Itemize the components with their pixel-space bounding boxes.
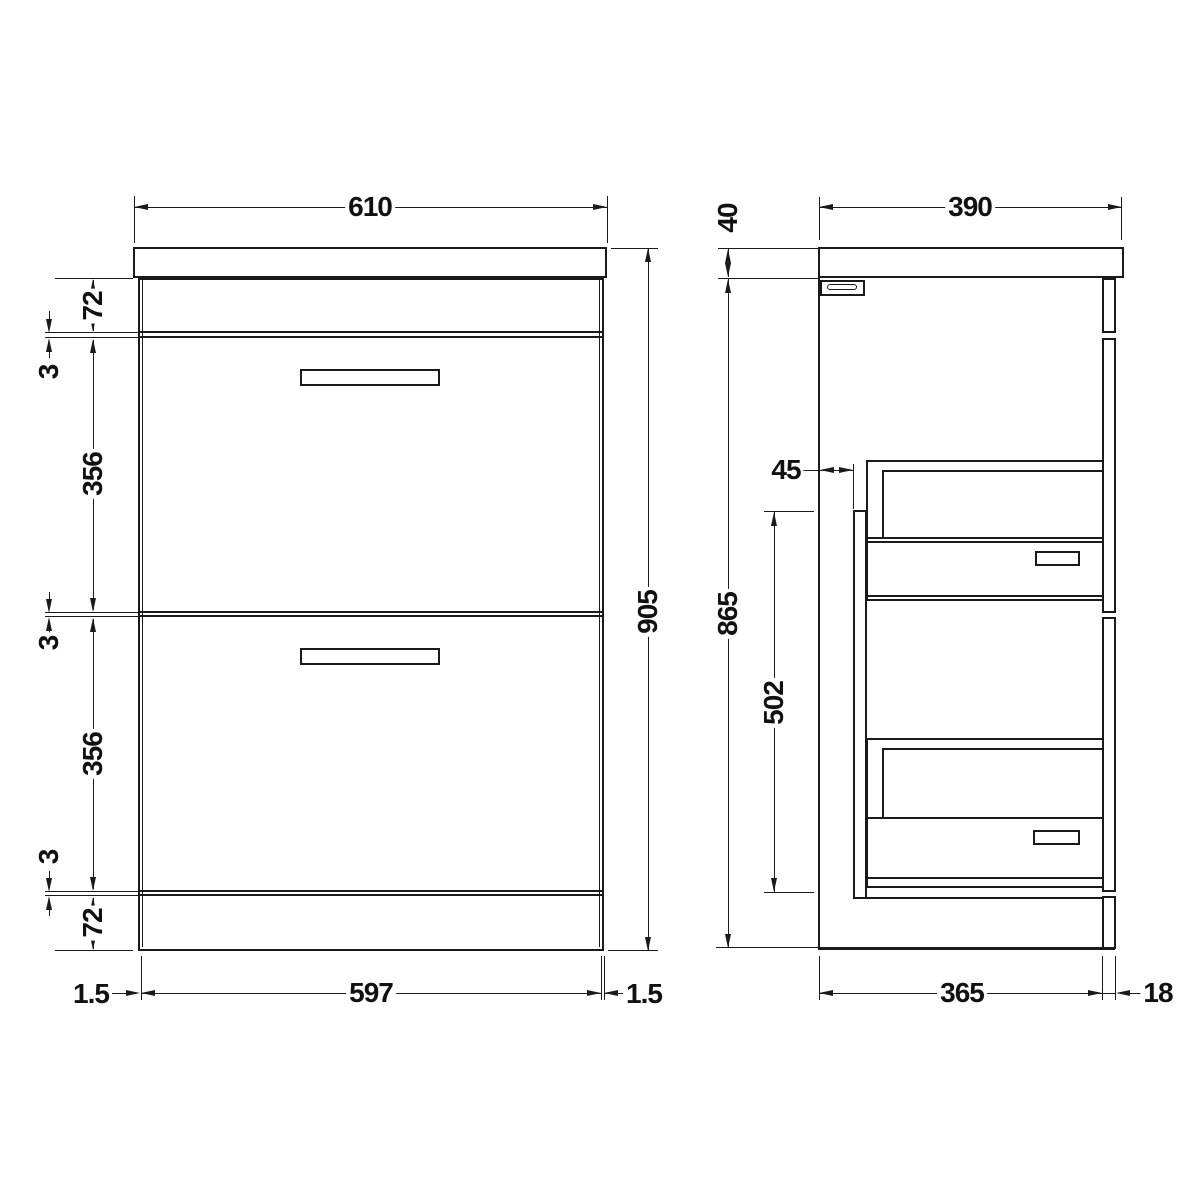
dim-arrow — [820, 467, 834, 473]
drawer2-box-inner-back — [882, 748, 884, 817]
drawer1-handle — [300, 369, 440, 386]
ext-line — [764, 892, 814, 893]
dim-front-width: 610 — [345, 193, 395, 221]
dim-side-gap-left: 1.5 — [70, 980, 112, 1008]
dim-arrow — [1088, 990, 1102, 996]
ext-line — [45, 612, 138, 613]
ext-line — [45, 337, 138, 338]
top-rail-front-side — [1102, 278, 1116, 333]
gap-line — [140, 336, 602, 338]
dim-arrow — [46, 338, 52, 352]
dim-arrow — [771, 512, 777, 526]
dim-worktop-thickness: 40 — [714, 200, 742, 235]
ext-line — [45, 895, 138, 896]
dim-arrow — [141, 990, 155, 996]
ext-line — [718, 278, 818, 279]
plinth-side — [1102, 896, 1116, 949]
dim-front-panel-thickness: 18 — [1140, 979, 1175, 1007]
drawer1-box-bottom — [866, 599, 1102, 601]
dim-arrow — [134, 204, 148, 210]
dim-drawer1-height: 356 — [79, 449, 107, 499]
countertop-side — [818, 247, 1124, 278]
gap-line — [140, 611, 602, 613]
ext-line — [45, 891, 138, 892]
dim-arrow — [725, 249, 731, 263]
dim-arrow — [839, 467, 853, 473]
dim-arrow — [819, 204, 833, 210]
dim-arrow — [587, 990, 601, 996]
runner-rail-top — [853, 510, 867, 512]
drawer-edge-line-right — [599, 280, 600, 947]
dim-gap-top: 3 — [35, 362, 63, 383]
dim-arrow — [90, 598, 96, 612]
countertop-front — [133, 247, 607, 278]
ext-line — [45, 332, 138, 333]
dim-depth: 390 — [945, 193, 995, 221]
dim-line — [1102, 993, 1116, 994]
dim-arrow — [90, 339, 96, 353]
dim-arrow — [46, 896, 52, 910]
dim-arrow — [1108, 204, 1122, 210]
drawer2-handle — [300, 648, 440, 665]
dim-arrow — [46, 878, 52, 892]
drawer1-box-line — [866, 537, 1102, 539]
dim-arrow — [46, 617, 52, 631]
drawer1-box-inner-top — [882, 470, 1102, 472]
drawer1-runner-clip — [1035, 551, 1080, 566]
gap-line — [140, 615, 602, 617]
dim-top-rail: 72 — [79, 288, 107, 323]
dim-runner-setback: 45 — [768, 456, 803, 484]
dim-arrow — [819, 990, 833, 996]
dim-arrow — [725, 934, 731, 948]
dim-internal-height: 502 — [760, 678, 788, 728]
dim-arrow — [46, 319, 52, 333]
ext-line — [718, 248, 818, 249]
gap-line — [140, 890, 602, 892]
drawer1-box-inner-back — [882, 470, 884, 537]
ext-line — [716, 947, 818, 948]
dim-arrow — [46, 599, 52, 613]
runner-rail — [853, 510, 855, 898]
ext-line — [601, 956, 602, 1000]
dim-arrow — [1116, 990, 1130, 996]
dim-carcass-height: 865 — [714, 589, 742, 639]
technical-drawing: 610 905 72 3 356 — [0, 0, 1200, 1200]
drawer2-box-line — [866, 817, 1102, 819]
drawer2-box-inner-top — [882, 748, 1102, 750]
fixing-bracket-slot — [827, 284, 857, 290]
drawer1-box-line — [866, 541, 1102, 543]
dim-arrow — [90, 618, 96, 632]
dim-line — [49, 352, 50, 358]
dim-drawer2-height: 356 — [79, 729, 107, 779]
drawer-edge-line-left — [142, 280, 143, 947]
dim-arrow — [645, 248, 651, 262]
drawer1-front-side — [1102, 338, 1116, 613]
dim-line — [49, 910, 50, 916]
ext-line — [611, 248, 658, 249]
drawer1-box-back — [866, 460, 868, 600]
dim-plinth-height: 72 — [79, 905, 107, 940]
ext-line — [45, 616, 138, 617]
dim-side-gap-right: 1.5 — [623, 980, 665, 1008]
dim-arrow — [126, 990, 140, 996]
dim-gap-bottom: 3 — [35, 847, 63, 868]
bottom-panel-line — [853, 897, 1102, 899]
drawer1-box-top — [866, 460, 1102, 462]
drawer2-box-back — [866, 738, 868, 887]
ext-line — [853, 464, 854, 509]
ext-line — [55, 950, 133, 951]
dim-arrow — [771, 878, 777, 892]
dim-carcass-depth: 365 — [937, 979, 987, 1007]
dim-gap-middle: 3 — [35, 633, 63, 654]
drawer1-box-bottom-inner — [866, 595, 1102, 597]
back-panel — [818, 278, 820, 949]
drawer2-box-bottom — [866, 886, 1102, 888]
dim-arrow — [645, 937, 651, 951]
drawer2-box-bottom-inner — [866, 877, 1102, 879]
gap-line — [140, 894, 602, 896]
drawer2-front-side — [1102, 617, 1116, 892]
dim-arrow — [604, 990, 618, 996]
cabinet-bottom-edge — [818, 947, 1115, 950]
drawer2-runner-clip — [1033, 830, 1080, 845]
dim-arrow — [593, 204, 607, 210]
gap-line — [140, 331, 602, 333]
dim-arrow — [725, 263, 731, 277]
ext-line — [607, 196, 608, 243]
dim-arrow — [725, 279, 731, 293]
dim-drawer-front-width: 597 — [346, 979, 396, 1007]
drawer2-box-top — [866, 738, 1102, 740]
ext-line — [608, 950, 658, 951]
dim-line — [49, 311, 50, 319]
dim-arrow — [90, 877, 96, 891]
dim-overall-height: 905 — [634, 587, 662, 637]
